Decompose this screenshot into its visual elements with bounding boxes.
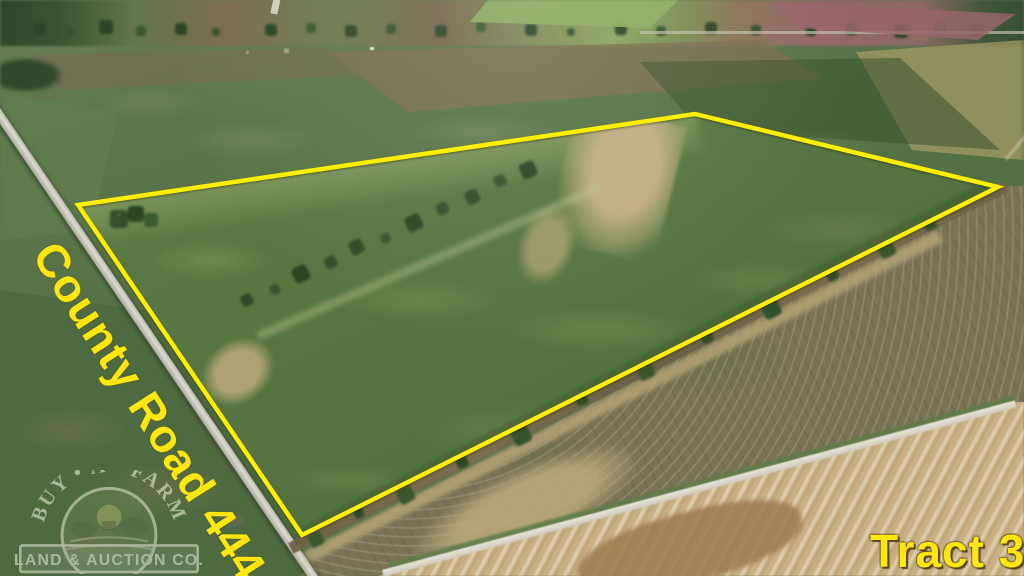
buy-a-farm-logo: BUY • A • FARM LAND & AUCTION CO. bbox=[14, 470, 204, 574]
logo-trees-left bbox=[70, 521, 97, 537]
aerial-photo-scene: County Road 444 Tract 3 BUY • A • FARM L… bbox=[0, 0, 1024, 576]
logo-trees-right bbox=[119, 518, 148, 536]
logo-barn bbox=[102, 521, 116, 530]
logo-banner-text: LAND & AUCTION CO. bbox=[14, 552, 204, 569]
tract-number-label: Tract 3 bbox=[870, 528, 1024, 574]
